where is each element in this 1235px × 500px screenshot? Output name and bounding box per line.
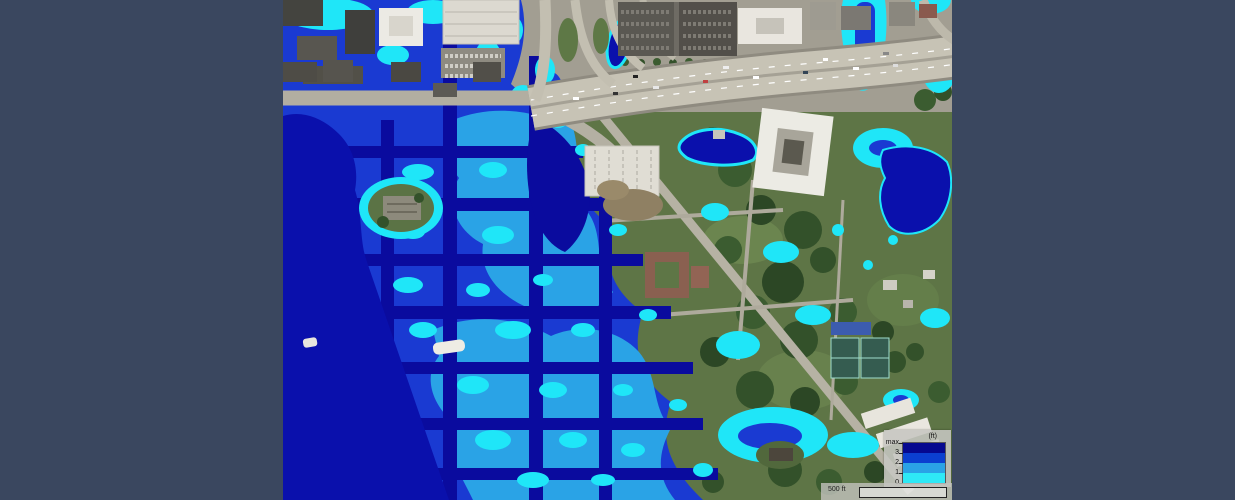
legend-swatch-mid bbox=[903, 463, 945, 473]
legend-tick-3: 3 bbox=[885, 449, 899, 457]
legend-tick-max: max bbox=[885, 439, 899, 447]
legend-tick-1: 1 bbox=[885, 469, 899, 477]
legend-title: (ft) bbox=[928, 433, 937, 441]
flood-map-canvas bbox=[283, 0, 952, 500]
flood-depth-legend: (ft) max 3 2 1 0 bbox=[884, 430, 951, 487]
legend-swatch-deep bbox=[903, 453, 945, 463]
legend-tick-2: 2 bbox=[885, 459, 899, 467]
legend-tickmark bbox=[899, 473, 903, 474]
legend-swatch-deepest bbox=[903, 443, 945, 453]
legend-swatch-shallow bbox=[903, 473, 945, 483]
legend-colorbar bbox=[903, 443, 945, 483]
scale-bar-label: 500 ft bbox=[828, 486, 846, 494]
flood-map-viewport[interactable]: (ft) max 3 2 1 0 500 ft bbox=[283, 0, 952, 500]
legend-tickmark bbox=[899, 453, 903, 454]
scale-bar: 500 ft bbox=[821, 483, 952, 500]
legend-tickmark bbox=[899, 463, 903, 464]
legend-tickmark bbox=[899, 443, 903, 444]
right-letterbox bbox=[952, 0, 1235, 500]
left-letterbox bbox=[0, 0, 283, 500]
screenshot-frame: (ft) max 3 2 1 0 500 ft bbox=[0, 0, 1235, 500]
scale-bar-rule bbox=[859, 487, 947, 498]
